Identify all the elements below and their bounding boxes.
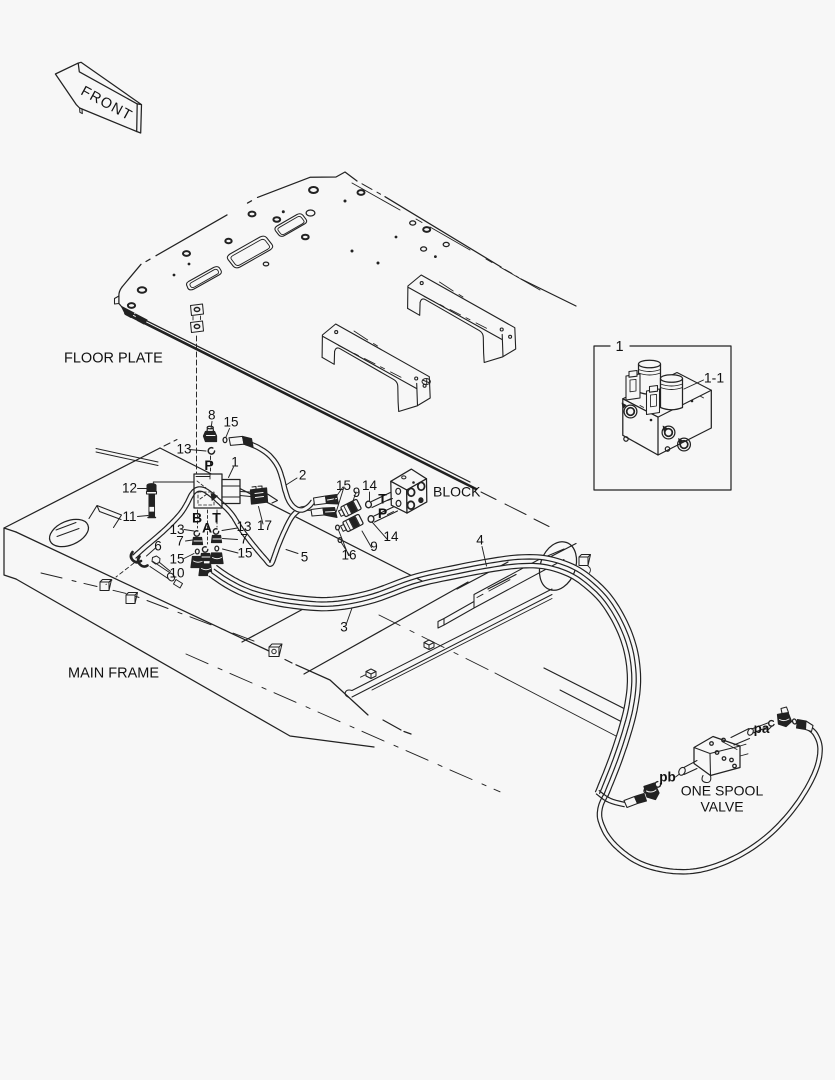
svg-text:7: 7 xyxy=(176,534,184,549)
svg-text:10: 10 xyxy=(169,566,184,581)
svg-text:P: P xyxy=(204,457,213,473)
svg-text:2: 2 xyxy=(299,467,307,482)
svg-text:pb: pb xyxy=(659,770,676,785)
svg-text:8: 8 xyxy=(208,407,216,422)
svg-text:4: 4 xyxy=(476,533,484,548)
svg-text:12: 12 xyxy=(122,481,137,496)
svg-text:14: 14 xyxy=(383,529,399,544)
svg-text:A: A xyxy=(202,520,212,536)
svg-text:6: 6 xyxy=(154,539,162,554)
svg-text:VALVE: VALVE xyxy=(700,799,743,815)
svg-text:7: 7 xyxy=(240,532,248,547)
svg-text:1: 1 xyxy=(231,454,239,469)
svg-text:17: 17 xyxy=(257,518,272,533)
svg-text:14: 14 xyxy=(362,478,378,493)
svg-text:B: B xyxy=(192,510,202,526)
svg-text:MAIN FRAME: MAIN FRAME xyxy=(68,666,159,682)
svg-text:15: 15 xyxy=(169,552,184,567)
svg-text:FLOOR PLATE: FLOOR PLATE xyxy=(64,351,163,367)
svg-text:ONE SPOOL: ONE SPOOL xyxy=(681,783,764,799)
svg-text:pa: pa xyxy=(754,721,770,736)
svg-text:T: T xyxy=(212,510,221,526)
svg-text:13: 13 xyxy=(176,442,191,457)
svg-text:1: 1 xyxy=(615,339,623,355)
svg-text:15: 15 xyxy=(237,546,252,561)
svg-text:5: 5 xyxy=(301,550,309,565)
svg-text:1-1: 1-1 xyxy=(704,370,724,386)
svg-text:15: 15 xyxy=(223,415,238,430)
svg-text:BLOCK: BLOCK xyxy=(433,484,481,500)
svg-text:11: 11 xyxy=(122,509,136,524)
svg-text:P: P xyxy=(378,505,387,521)
svg-text:15: 15 xyxy=(336,478,351,493)
